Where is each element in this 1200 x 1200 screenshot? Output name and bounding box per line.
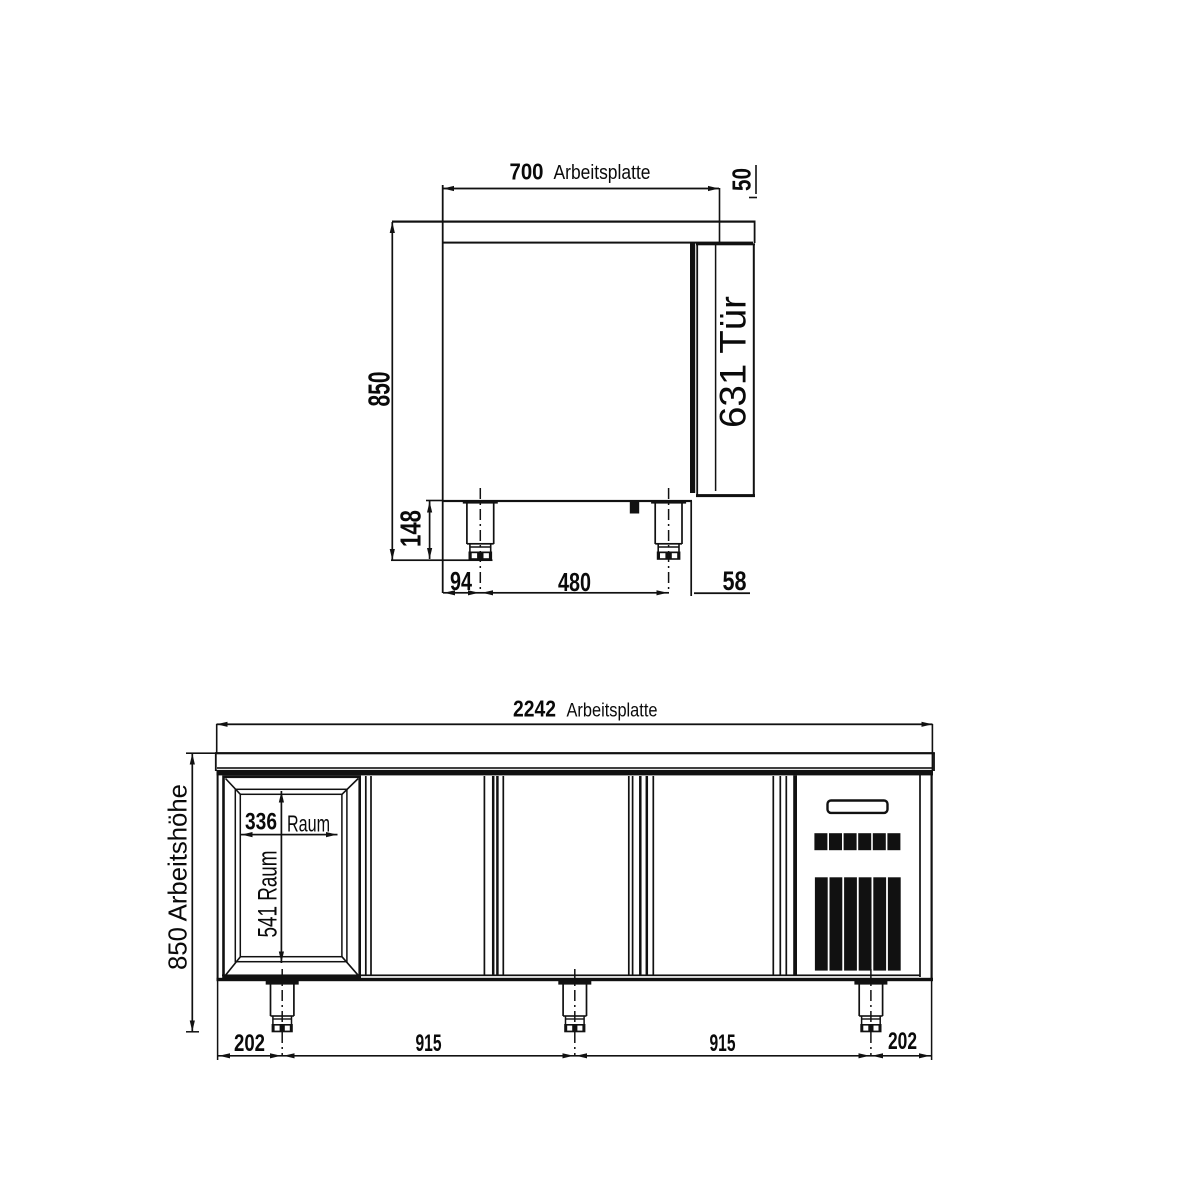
svg-text:631 Tür: 631 Tür xyxy=(713,296,754,428)
svg-text:Arbeitsplatte: Arbeitsplatte xyxy=(554,162,651,184)
svg-text:50: 50 xyxy=(727,168,757,191)
svg-text:Raum: Raum xyxy=(287,810,330,836)
svg-text:148: 148 xyxy=(396,510,428,547)
svg-text:700: 700 xyxy=(510,159,544,185)
svg-text:850: 850 xyxy=(362,372,397,407)
svg-text:2242: 2242 xyxy=(513,696,556,722)
svg-text:541 Raum: 541 Raum xyxy=(252,851,282,938)
svg-text:202: 202 xyxy=(888,1028,917,1055)
svg-text:Arbeitsplatte: Arbeitsplatte xyxy=(567,701,658,722)
svg-text:850 Arbeitshöhe: 850 Arbeitshöhe xyxy=(162,784,192,970)
svg-text:336: 336 xyxy=(245,808,277,835)
svg-text:480: 480 xyxy=(558,567,591,597)
svg-text:915: 915 xyxy=(710,1030,736,1057)
svg-text:94: 94 xyxy=(450,566,472,596)
svg-text:915: 915 xyxy=(416,1030,442,1057)
svg-text:58: 58 xyxy=(723,566,747,596)
svg-text:202: 202 xyxy=(234,1030,265,1057)
